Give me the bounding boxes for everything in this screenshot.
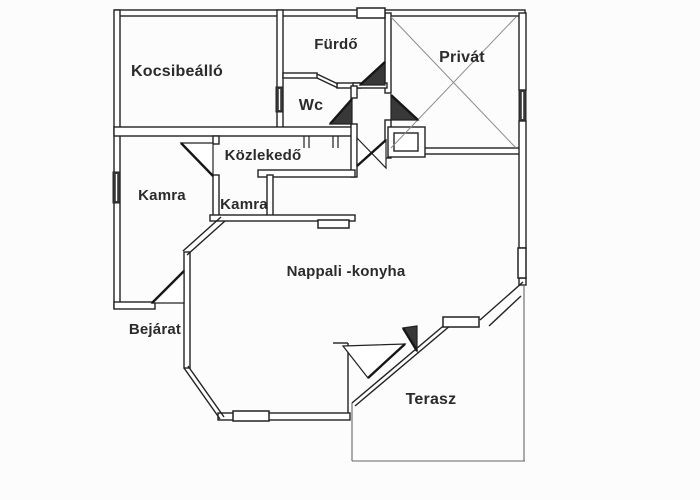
- top-window: [357, 8, 385, 18]
- living-left-wall: [184, 252, 190, 368]
- pantry2-left-wall: [213, 175, 219, 216]
- room-label-kozlekedo: Közlekedő: [225, 147, 302, 164]
- closet-divider-wall: [267, 175, 273, 216]
- carport-right-wall: [277, 10, 283, 132]
- kitchen-pass: [318, 220, 349, 228]
- private-bottom-wall: [423, 148, 521, 154]
- room-label-nappali: Nappali -konyha: [287, 263, 406, 280]
- wc-right-wall-b: [351, 124, 357, 177]
- right-wall-mid: [519, 121, 526, 248]
- pantry-bottom-wall: [114, 302, 155, 309]
- plan-background: [0, 0, 700, 500]
- wc-right-wall-a: [351, 86, 357, 98]
- pantry2-left-wall-stub: [213, 136, 219, 144]
- floor-plan-drawing: KocsibeállóFürdőWcPrivátKamraKözlekedőKa…: [0, 0, 700, 500]
- top-wall: [115, 10, 525, 16]
- room-label-bejarat: Bejárat: [129, 321, 181, 338]
- room-label-terasz: Terasz: [406, 391, 457, 408]
- room-label-wc: Wc: [299, 97, 323, 114]
- floor-plan-page: KocsibeállóFürdőWcPrivátKamraKözlekedőKa…: [0, 0, 700, 500]
- right-mid-window: [518, 248, 526, 278]
- room-label-kamra-nagy: Kamra: [138, 187, 186, 204]
- room-label-kamra-kicsi: Kamra: [220, 196, 268, 213]
- room-label-privat: Privát: [439, 49, 485, 66]
- left-wall: [114, 10, 120, 308]
- terrace-window: [443, 317, 479, 327]
- main-horizontal-wall: [114, 127, 356, 136]
- bath-bottom-wall-a: [283, 73, 317, 78]
- room-label-furdo: Fürdő: [314, 36, 358, 53]
- right-wall-top: [519, 13, 526, 90]
- private-nook-inner: [394, 133, 418, 151]
- room-label-kocsibeallo: Kocsibeálló: [131, 63, 223, 80]
- bath-private-wall: [385, 13, 391, 93]
- living-bottom-window: [233, 411, 269, 421]
